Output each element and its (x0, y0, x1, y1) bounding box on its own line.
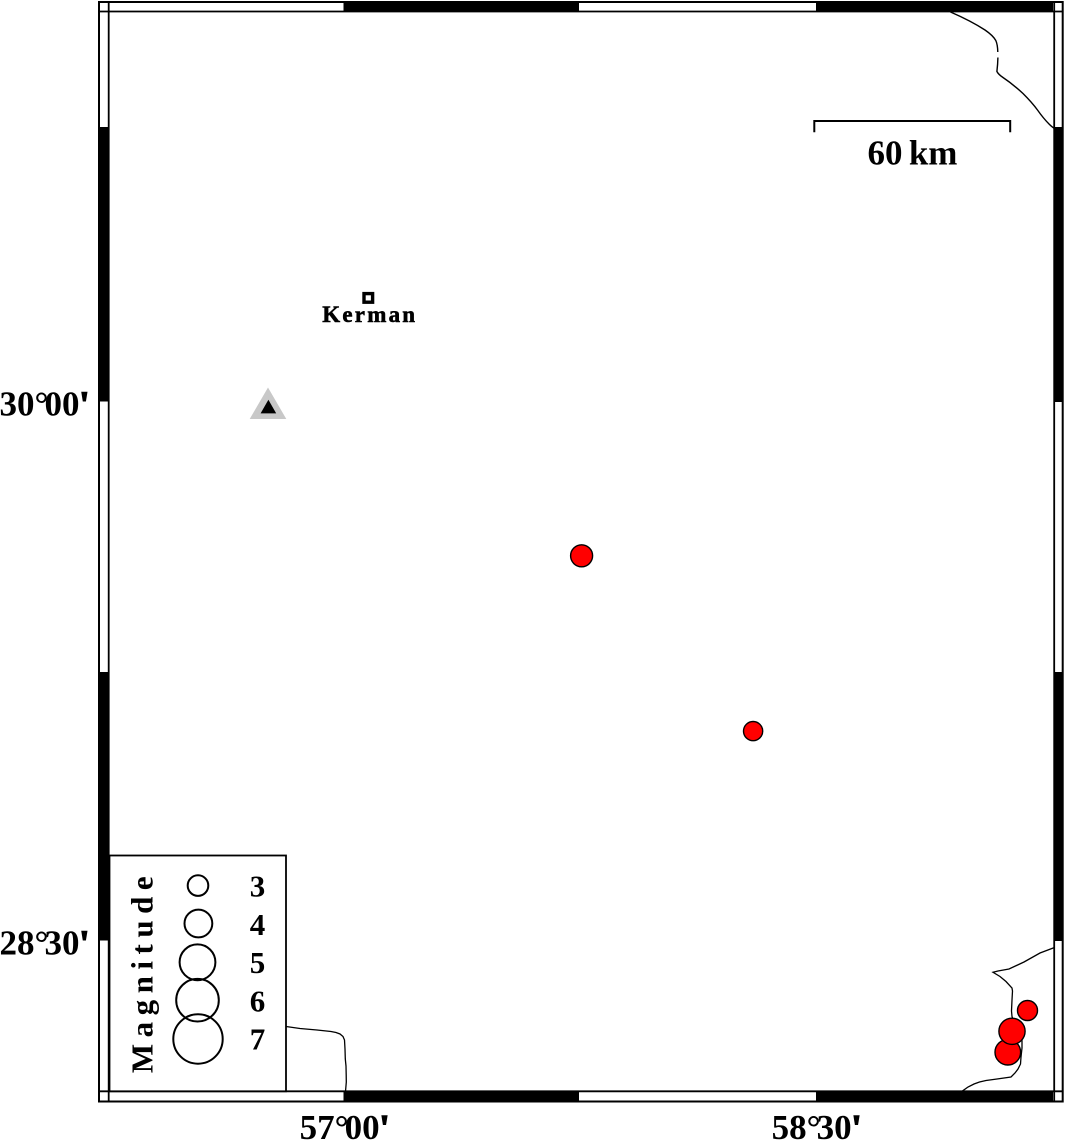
svg-text:57°00': 57°00' (300, 1108, 390, 1141)
svg-text:58°30': 58°30' (772, 1108, 862, 1141)
svg-text:Kerman: Kerman (322, 302, 417, 327)
svg-text:Magnitude: Magnitude (125, 870, 160, 1073)
svg-text:28°30': 28°30' (0, 924, 89, 963)
svg-text:4: 4 (250, 907, 266, 942)
svg-text:3: 3 (250, 869, 266, 904)
svg-text:30°00': 30°00' (0, 385, 89, 424)
svg-text:7: 7 (250, 1022, 266, 1057)
svg-text:60 km: 60 km (868, 134, 958, 173)
svg-text:5: 5 (250, 945, 266, 980)
svg-text:6: 6 (250, 983, 266, 1018)
